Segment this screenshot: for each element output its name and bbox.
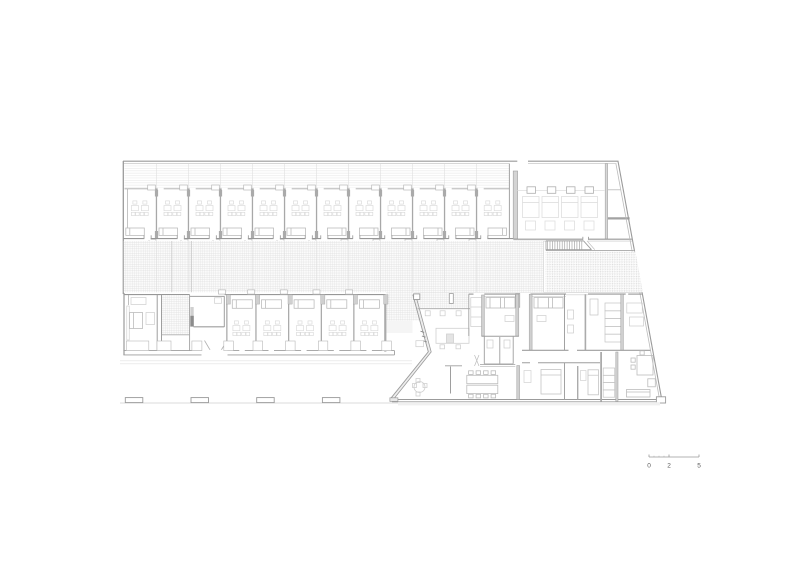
- svg-text:0: 0: [647, 463, 651, 470]
- svg-text:2: 2: [667, 463, 671, 470]
- svg-text:5: 5: [697, 463, 701, 470]
